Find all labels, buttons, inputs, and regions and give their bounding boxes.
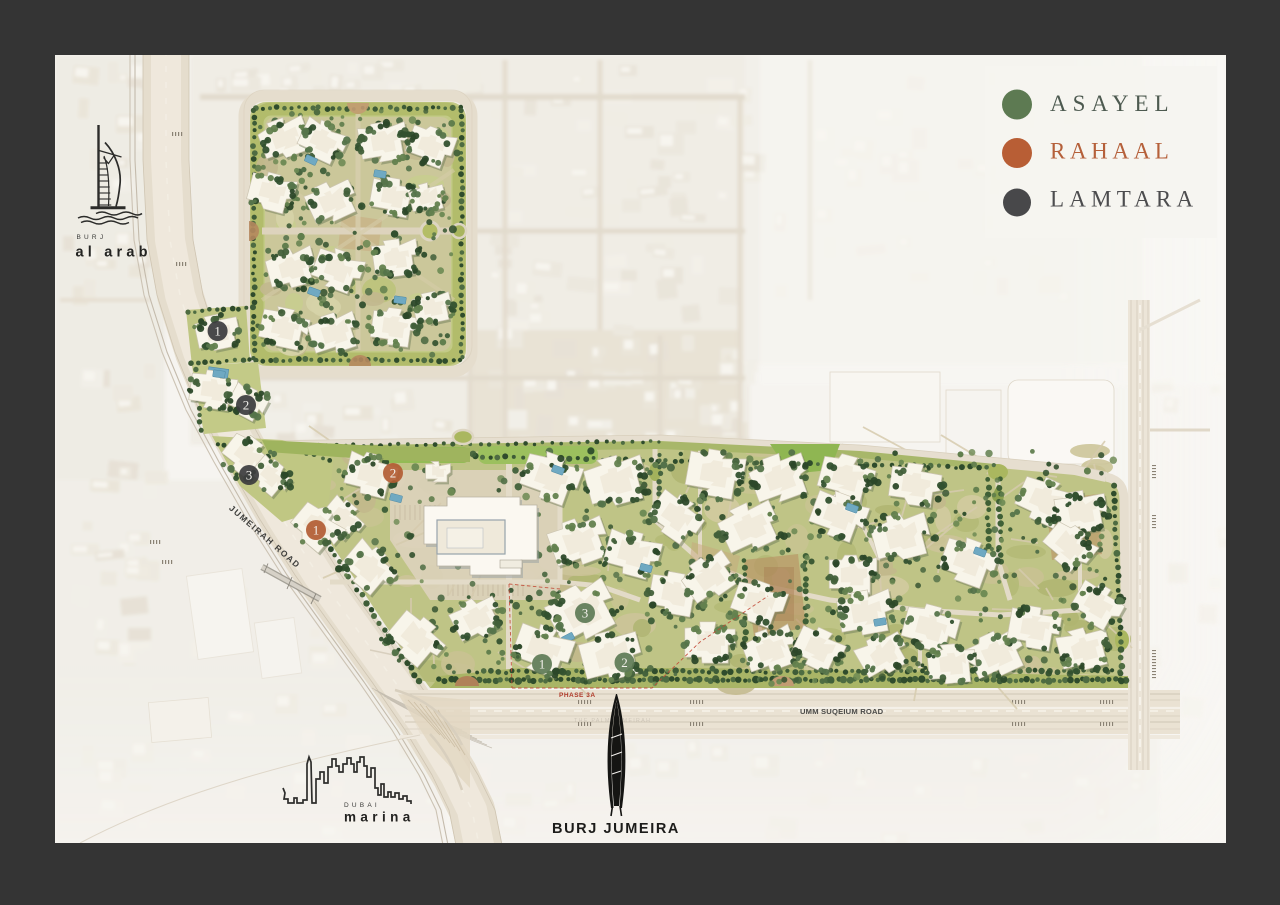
svg-text:3: 3 — [582, 606, 589, 621]
svg-text:1: 1 — [313, 523, 320, 538]
svg-text:2: 2 — [621, 655, 628, 670]
svg-text:2: 2 — [390, 466, 397, 481]
svg-text:BURJ: BURJ — [77, 234, 107, 241]
svg-text:3: 3 — [246, 468, 253, 483]
svg-text:1: 1 — [214, 324, 221, 339]
svg-text:BURJ JUMEIRA: BURJ JUMEIRA — [552, 821, 680, 837]
svg-text:UMM SUQEIUM ROAD: UMM SUQEIUM ROAD — [800, 707, 884, 716]
svg-text:al arab: al arab — [76, 245, 152, 261]
svg-text:DUBAI: DUBAI — [344, 802, 380, 809]
svg-text:1: 1 — [539, 657, 546, 672]
svg-text:marina: marina — [344, 810, 415, 825]
svg-text:PHASE 3A: PHASE 3A — [559, 692, 596, 699]
svg-text:ASAYEL: ASAYEL — [1050, 91, 1175, 116]
svg-text:2: 2 — [243, 398, 250, 413]
svg-text:RAHAAL: RAHAAL — [1050, 139, 1173, 164]
svg-text:LAMTARA: LAMTARA — [1050, 187, 1198, 212]
